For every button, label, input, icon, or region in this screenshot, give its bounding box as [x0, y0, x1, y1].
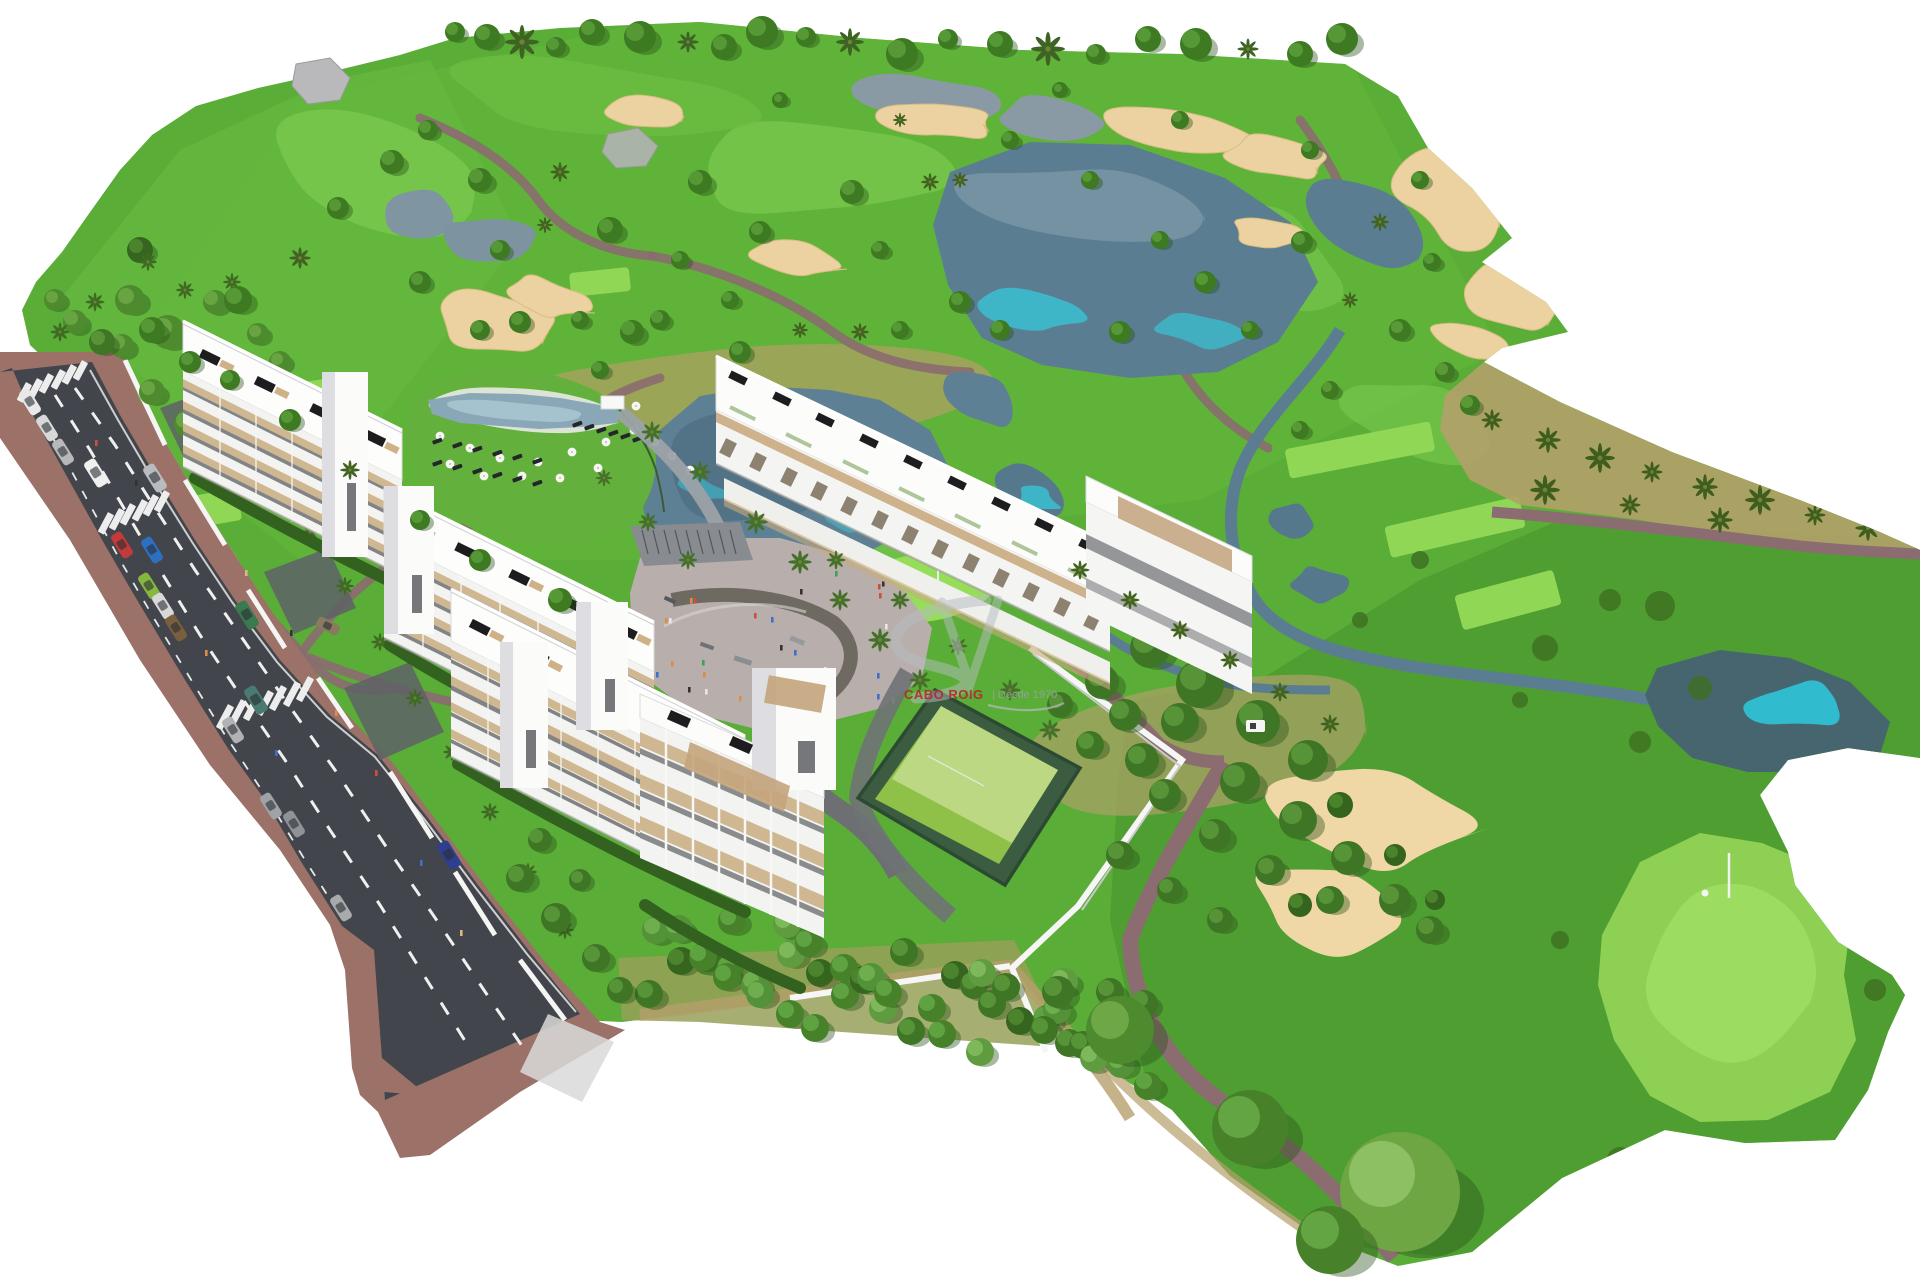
- svg-text:CABO ROIG: CABO ROIG: [904, 687, 984, 702]
- svg-text:| Desde 1970: | Desde 1970: [992, 689, 1057, 701]
